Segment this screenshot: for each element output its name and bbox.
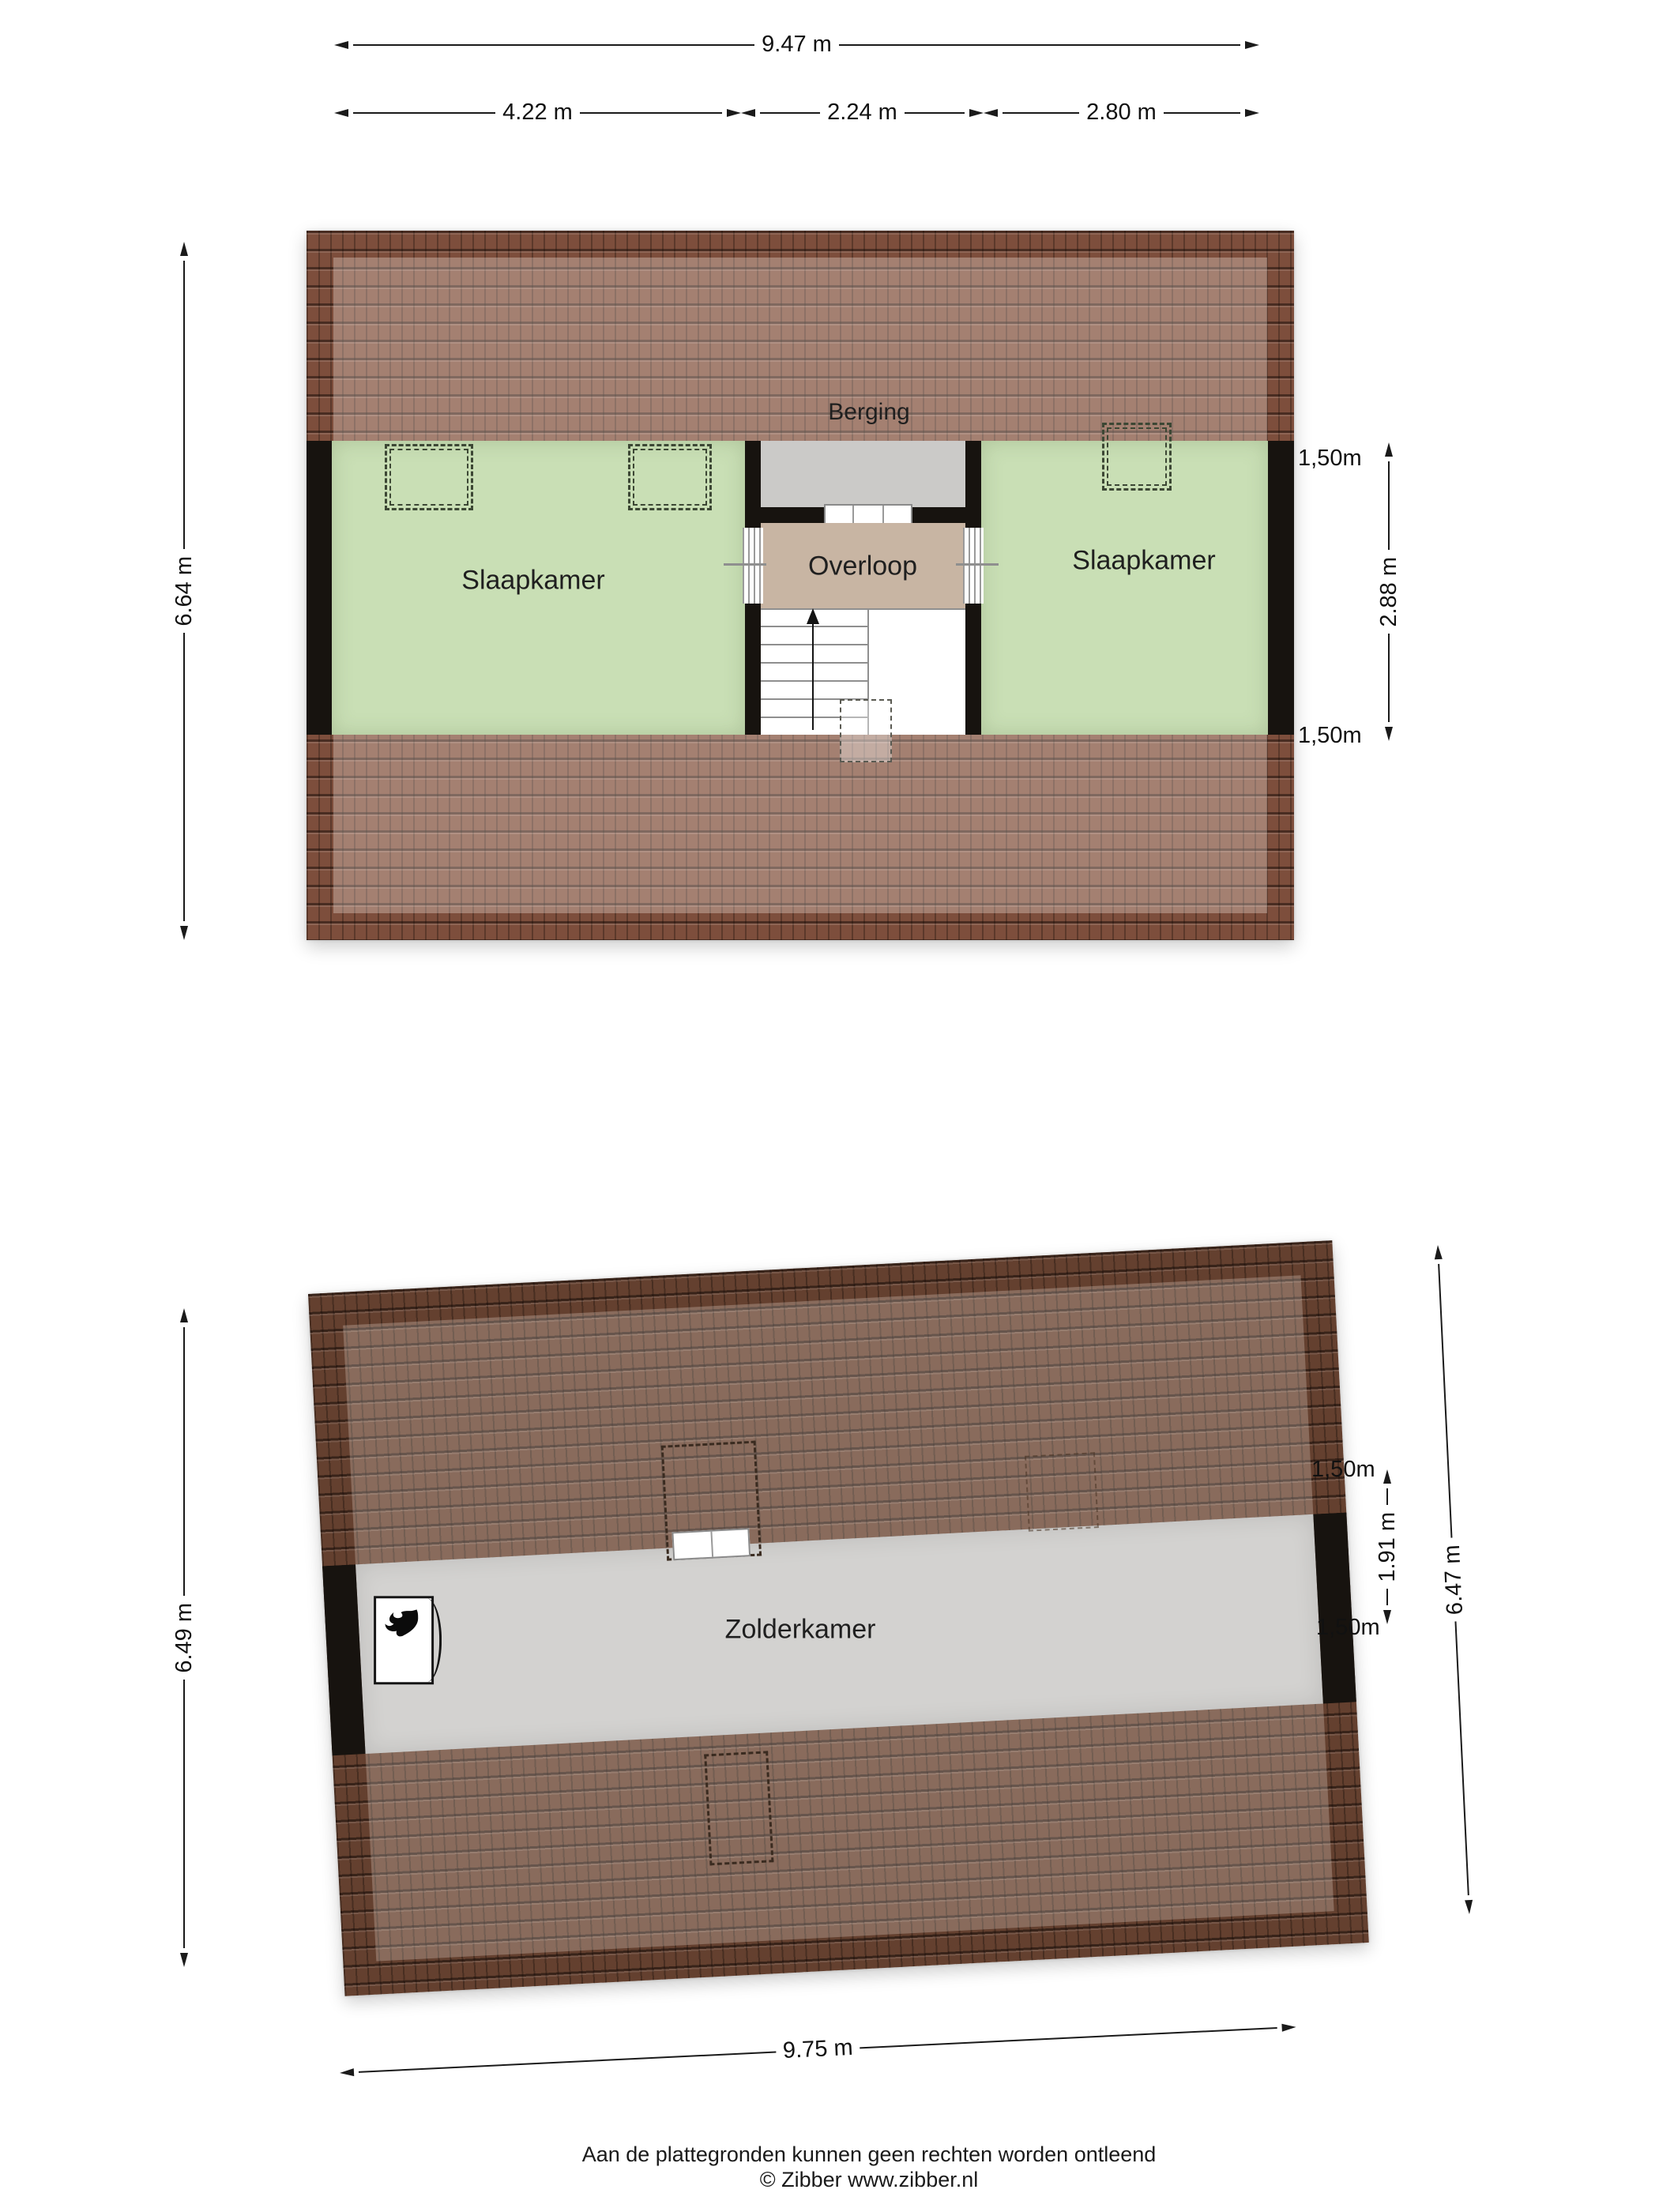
- dim-label: 6.49 m: [171, 1601, 197, 1676]
- dim-line: [1003, 112, 1079, 114]
- dim-floor1-total-width: 9.47 m: [334, 32, 1259, 58]
- dim-floor1-seg-left: 4.22 m: [334, 100, 741, 126]
- arrow-right-icon: [727, 109, 741, 117]
- arrow-left-icon: [334, 109, 348, 117]
- arrow-right-icon: [1245, 109, 1259, 117]
- copyright-text: © Zibber www.zibber.nl: [760, 2168, 979, 2192]
- room-label-storage: Berging: [828, 399, 909, 426]
- arrow-up-icon: [180, 242, 188, 256]
- arrow-down-icon: [1465, 1900, 1473, 1914]
- roof-window-dashed: [1102, 423, 1172, 491]
- room-label-bedroom-right: Slaapkamer: [1072, 546, 1215, 577]
- window-mullion: [882, 506, 884, 525]
- stair-headroom-dashed: [840, 699, 892, 762]
- arrow-down-icon: [1385, 727, 1393, 741]
- dim-floor2-side-left: 6.49 m: [168, 1308, 200, 1967]
- dim-line: [183, 633, 185, 921]
- arrow-up-icon: [1383, 1469, 1391, 1484]
- dim-line: [1454, 1622, 1469, 1895]
- floorplan-upper-floor: Berging Slaapkamer Overloop Slaapkamer: [307, 231, 1294, 940]
- stair-tread: [761, 644, 867, 645]
- wall-right: [1268, 441, 1294, 735]
- door-leaf-line: [956, 563, 999, 566]
- arrow-right-icon: [969, 109, 984, 117]
- disclaimer-text: Aan de plattegronden kunnen geen rechten…: [582, 2142, 1157, 2167]
- room-label-landing: Overloop: [808, 551, 917, 582]
- dim-line: [860, 2027, 1277, 2048]
- clearance-label-top: 1,50m: [1298, 446, 1362, 472]
- dim-line: [1386, 1488, 1388, 1505]
- dim-floor1-seg-right: 2.80 m: [984, 100, 1259, 126]
- dim-line: [1388, 634, 1390, 722]
- dim-line: [580, 112, 722, 114]
- window-mullion: [852, 506, 854, 525]
- arrow-up-icon: [1385, 442, 1393, 457]
- up-arrow-icon: [807, 608, 819, 624]
- arrow-left-icon: [741, 109, 755, 117]
- dim-line: [353, 112, 495, 114]
- arrow-right-icon: [1281, 2022, 1296, 2031]
- roof-window-dashed: [628, 444, 712, 510]
- boiler-unit: [374, 1596, 434, 1684]
- room-label-attic: Zolderkamer: [725, 1614, 876, 1645]
- dim-label: 2.80 m: [1084, 100, 1159, 126]
- floorplan-page: 9.47 m 4.22 m 2.24 m 2.80 m 6.64 m 1,50m: [0, 0, 1659, 2212]
- dim-line: [1388, 461, 1390, 550]
- dim-label: 2.88 m: [1376, 555, 1402, 630]
- dim-label: 9.75 m: [780, 2035, 856, 2065]
- skylight-dashed: [704, 1751, 773, 1865]
- dim-floor2-side-right: 6.47 m: [1422, 1244, 1485, 1915]
- dim-line: [359, 2051, 776, 2072]
- arrow-down-icon: [180, 926, 188, 940]
- dim-floor2-inner-height: 1.91 m: [1371, 1469, 1403, 1624]
- dim-floor1-side-height: 6.64 m: [168, 242, 200, 940]
- dim-line: [1386, 1589, 1388, 1605]
- dim-label: 4.22 m: [500, 100, 575, 126]
- dim-line: [905, 112, 965, 114]
- dim-line: [1438, 1264, 1452, 1537]
- room-storage-floor: [761, 441, 965, 507]
- arrow-right-icon: [1245, 41, 1259, 49]
- door-opening-left: [743, 528, 763, 604]
- clearance-label-bottom: 1,50m: [1316, 1615, 1380, 1641]
- dim-label: 9.47 m: [759, 32, 834, 58]
- wall-storage-landing: [761, 507, 965, 523]
- window-mullion: [710, 1532, 713, 1557]
- dim-line: [760, 112, 820, 114]
- dim-line: [183, 1680, 185, 1948]
- stair-tread: [761, 680, 867, 682]
- door-opening-right: [963, 528, 984, 604]
- stair-direction-line: [812, 621, 814, 730]
- dim-line: [183, 261, 185, 549]
- arrow-up-icon: [180, 1308, 188, 1322]
- clearance-label-top: 1,50m: [1311, 1457, 1375, 1483]
- dim-floor1-inner-height: 2.88 m: [1373, 442, 1405, 741]
- stair-edge: [761, 608, 965, 610]
- dim-line: [183, 1327, 185, 1596]
- dim-line: [839, 44, 1240, 46]
- door-leaf-line: [724, 563, 766, 566]
- flame-icon: [381, 1604, 427, 1646]
- dim-floor1-seg-mid: 2.24 m: [741, 100, 984, 126]
- dim-line: [1164, 112, 1240, 114]
- floorplan-attic: Zolderkamer: [308, 1240, 1369, 1996]
- clearance-label-bottom: 1,50m: [1298, 723, 1362, 749]
- stair-tread: [761, 626, 867, 627]
- arrow-left-icon: [340, 2068, 354, 2077]
- dim-label: 6.64 m: [171, 554, 197, 629]
- dim-label: 2.24 m: [825, 100, 900, 126]
- dim-line: [353, 44, 754, 46]
- dim-floor2-width: 9.75 m: [339, 2014, 1296, 2086]
- dim-label: 1.91 m: [1375, 1510, 1401, 1585]
- skylight-dashed-faint: [1025, 1452, 1099, 1532]
- skylight-sill: [671, 1528, 750, 1560]
- room-label-bedroom-left: Slaapkamer: [461, 566, 604, 596]
- roof-window-dashed: [385, 444, 473, 510]
- stair-tread: [761, 662, 867, 664]
- arrow-down-icon: [1383, 1610, 1391, 1624]
- arrow-up-icon: [1434, 1245, 1443, 1259]
- arrow-left-icon: [984, 109, 998, 117]
- arrow-left-icon: [334, 41, 348, 49]
- arrow-down-icon: [180, 1953, 188, 1967]
- dim-label: 6.47 m: [1439, 1541, 1468, 1617]
- wall-left: [307, 441, 332, 735]
